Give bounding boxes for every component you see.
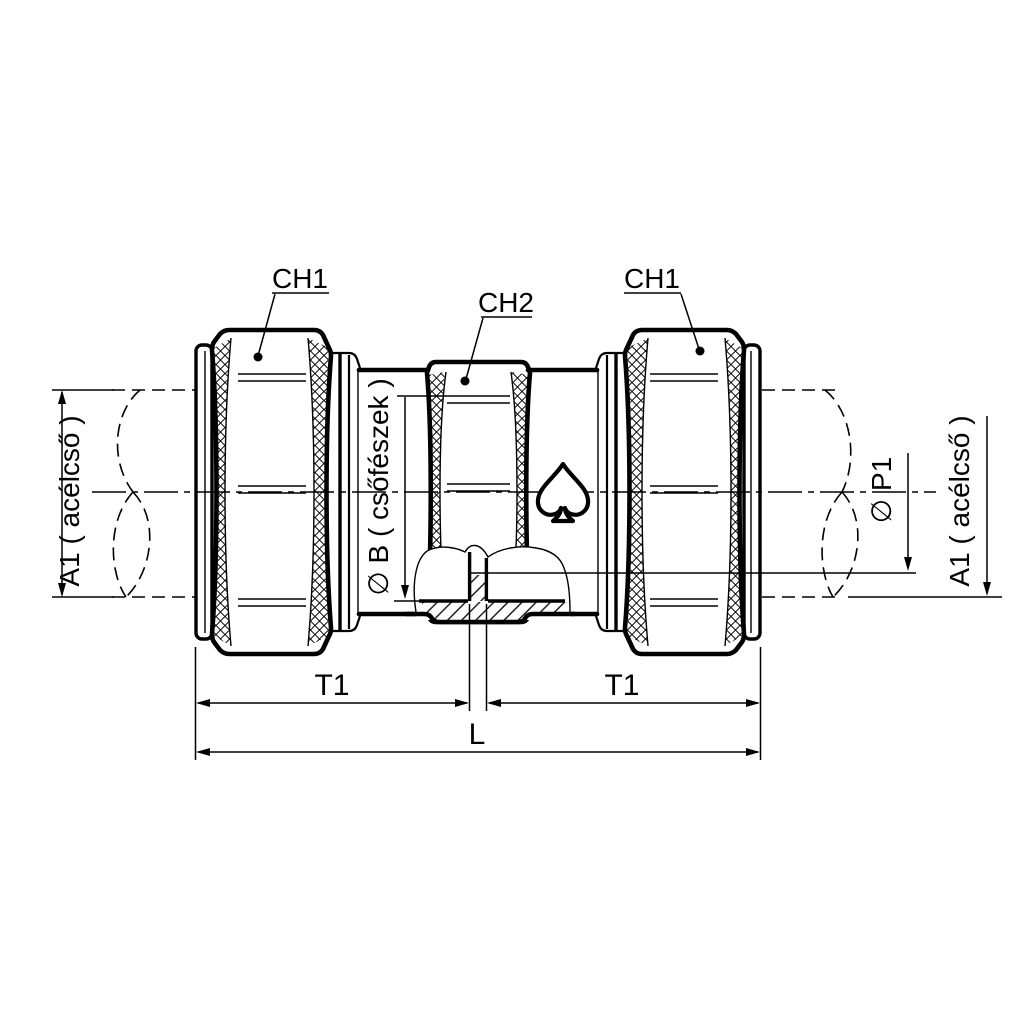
dim-b-seat: ∅ B ( csőfészek ) [363,378,421,601]
leader-dot [254,353,263,362]
label-t1-right: T1 [604,669,639,702]
pipe-right-break-upper [825,390,851,492]
technical-drawing-canvas: CH1 CH2 CH1 A1 ( acélcső ) ∅ B ( csőfész… [0,0,1024,1024]
arrow-down [983,582,991,596]
section-cutaway [406,545,916,622]
pipe-left-break-lens-b [113,492,133,597]
leader-dot [461,377,470,386]
arrow-down [401,585,409,599]
label-length: L [469,718,486,751]
arrow-right [455,699,469,707]
pipe-right [762,390,858,597]
label-b-seat: ∅ B ( csőfészek ) [363,378,394,595]
leader-ch1-right: CH1 [624,263,705,356]
leader-ch2: CH2 [461,287,535,386]
drawing-page: CH1 CH2 CH1 A1 ( acélcső ) ∅ B ( csőfész… [0,0,1024,1024]
dim-p1: ∅ P1 [866,453,912,571]
label-p1: ∅ P1 [866,457,897,523]
label-ch2: CH2 [478,287,534,318]
stop-ring-hatch [471,575,485,601]
pipe-left-break-upper [117,390,140,492]
arrow-left [487,699,501,707]
leader-line [681,294,699,349]
arrow-right [746,699,760,707]
arrow-right [746,748,760,756]
label-t1-left: T1 [314,669,349,702]
pipe-left [112,390,195,597]
pipe-right-break-lens-b [822,492,842,597]
arrow-left [196,748,210,756]
pipe-right-break-lens-a [833,492,858,597]
dim-a1-left: A1 ( acélcső ) [52,390,114,597]
arrow-left [196,699,210,707]
label-ch1-left: CH1 [272,263,328,294]
arrow-up [58,390,66,404]
label-a1-left: A1 ( acélcső ) [54,415,85,586]
leader-line [466,318,483,379]
label-a1-right: A1 ( acélcső ) [944,415,975,586]
leader-line [258,294,275,356]
leader-dot [696,347,705,356]
pipe-left-break-lens-a [126,492,150,597]
dim-bottom: T1 T1 L [196,604,761,760]
arrow-down [904,557,912,571]
hex-facet-lines [397,396,510,491]
label-ch1-right: CH1 [624,263,680,294]
spade-icon [538,464,588,521]
